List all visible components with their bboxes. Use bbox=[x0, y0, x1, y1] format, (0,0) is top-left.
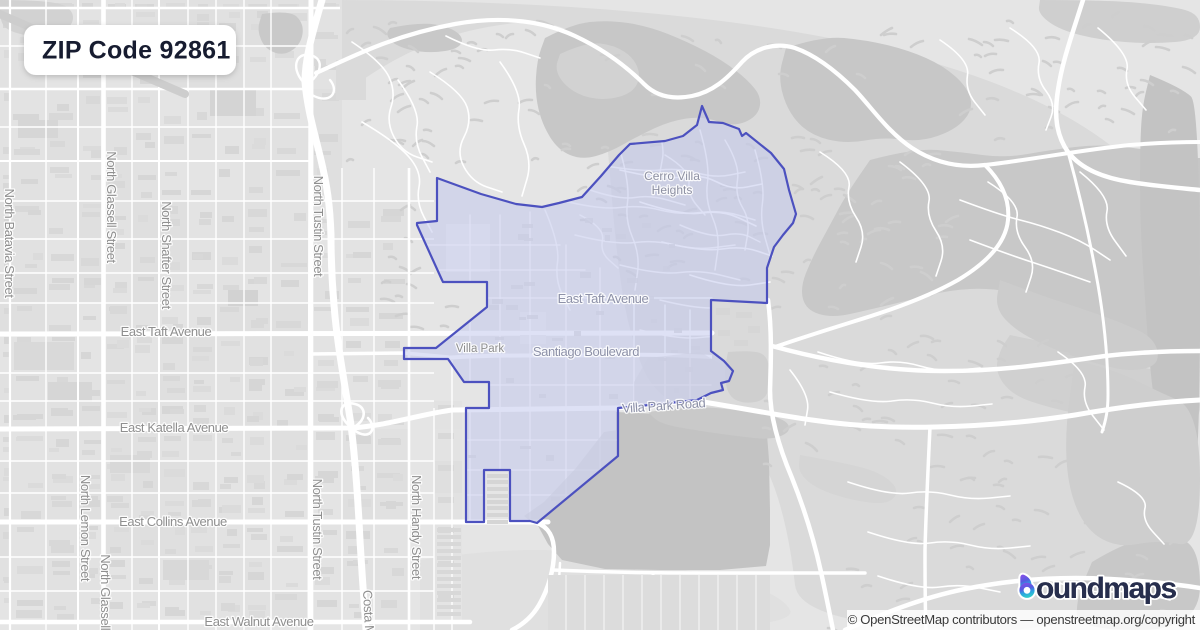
svg-text:North Shafter Street: North Shafter Street bbox=[159, 201, 174, 309]
svg-text:Cerro Villa: Cerro Villa bbox=[644, 169, 700, 183]
svg-text:oundmaps: oundmaps bbox=[1036, 572, 1176, 605]
svg-text:East Taft Avenue: East Taft Avenue bbox=[121, 324, 212, 339]
svg-text:East Taft Avenue: East Taft Avenue bbox=[558, 291, 649, 306]
svg-text:North Batavia Street: North Batavia Street bbox=[2, 188, 17, 298]
svg-text:East Walnut Avenue: East Walnut Avenue bbox=[204, 614, 313, 629]
svg-text:North Lemon Street: North Lemon Street bbox=[78, 475, 93, 582]
svg-text:North Glassell Street: North Glassell Street bbox=[98, 554, 113, 630]
svg-text:North Glassell Street: North Glassell Street bbox=[104, 151, 119, 263]
svg-text:East Collins Avenue: East Collins Avenue bbox=[119, 514, 227, 529]
svg-text:North Tustin Street: North Tustin Street bbox=[311, 176, 326, 278]
svg-text:Villa Park: Villa Park bbox=[456, 343, 505, 355]
svg-text:ZIP Code 92861: ZIP Code 92861 bbox=[42, 37, 231, 65]
svg-text:North Handy Street: North Handy Street bbox=[409, 475, 424, 580]
svg-text:© OpenStreetMap contributors —: © OpenStreetMap contributors — openstree… bbox=[848, 612, 1196, 627]
svg-text:North Tustin Street: North Tustin Street bbox=[310, 479, 325, 581]
svg-text:Heights: Heights bbox=[652, 183, 693, 197]
svg-text:East Katella Avenue: East Katella Avenue bbox=[120, 420, 229, 435]
svg-text:Santiago Boulevard: Santiago Boulevard bbox=[533, 344, 639, 359]
